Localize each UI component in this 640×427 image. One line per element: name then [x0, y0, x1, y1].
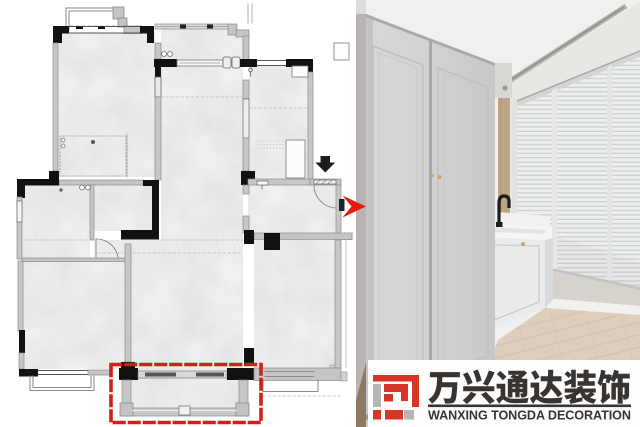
svg-text:WANXING TONGDA DECORATION: WANXING TONGDA DECORATION	[428, 409, 631, 423]
